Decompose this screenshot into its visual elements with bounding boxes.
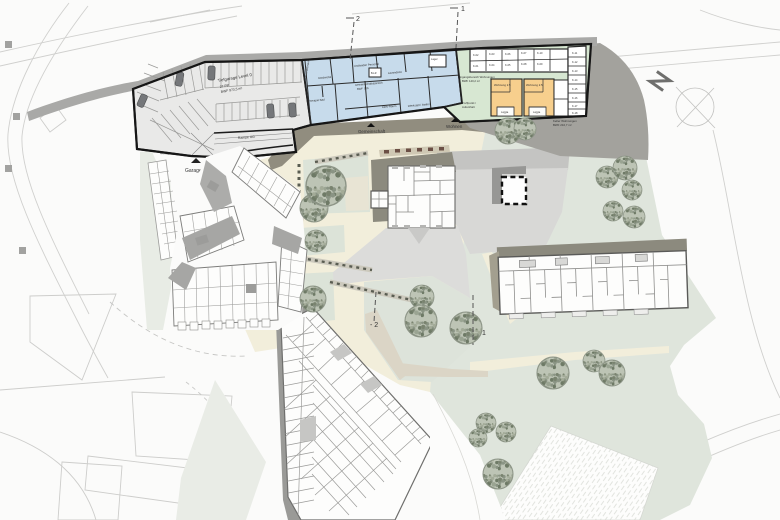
svg-text:Loggia: Loggia [501,111,509,114]
svg-text:- 2: - 2 [370,322,378,329]
svg-text:1: 1 [482,330,486,337]
svg-text:1: 1 [461,6,465,13]
svg-text:Wohnung 2.5: Wohnung 2.5 [494,83,511,87]
svg-text:BWF 210,7 m²: BWF 210,7 m² [553,123,572,127]
svg-text:K-13: K-13 [572,69,578,73]
svg-text:K-18: K-18 [572,111,578,115]
svg-text:K-09: K-09 [537,62,543,66]
svg-text:K-07: K-07 [521,51,527,55]
svg-text:B-LR: B-LR [371,72,377,75]
svg-text:Gemeinschaft: Gemeinschaft [358,129,386,134]
svg-text:K-15: K-15 [572,87,578,91]
svg-text:Aufenthalt: Aufenthalt [462,105,475,109]
svg-text:K-12: K-12 [572,60,578,64]
svg-text:K-11: K-11 [572,51,578,55]
svg-text:Wohnung 2.5: Wohnung 2.5 [526,83,543,87]
svg-text:K-14: K-14 [572,78,578,82]
svg-text:K-10: K-10 [537,51,543,55]
svg-text:K-16: K-16 [572,96,578,100]
svg-text:K-06: K-06 [505,52,511,56]
svg-text:K-02: K-02 [473,53,479,57]
svg-text:Lager: Lager [431,57,438,61]
svg-text:Wohnen: Wohnen [446,124,463,129]
svg-text:K-01: K-01 [473,64,479,68]
svg-text:K-08: K-08 [521,62,527,66]
svg-text:K-05: K-05 [505,63,511,67]
svg-text:BWF 140,2 m²: BWF 140,2 m² [462,79,480,83]
svg-text:K-04: K-04 [489,63,495,67]
svg-text:K-03: K-03 [489,52,495,56]
svg-text:K-17: K-17 [572,104,578,108]
svg-text:Loggia: Loggia [533,111,541,114]
svg-text:2: 2 [356,16,360,23]
